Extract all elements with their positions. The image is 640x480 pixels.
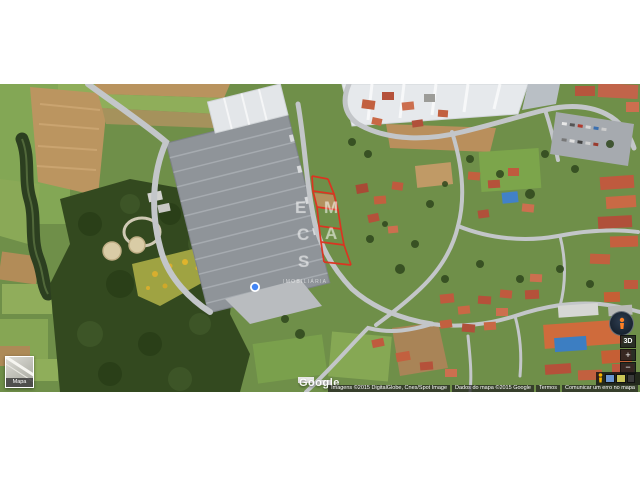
attribution-report-link[interactable]: Comunicar um erro no mapa xyxy=(562,385,638,392)
attribution-bar: Imagens ©2015 DigitalGlobe, Cnes/Spot Im… xyxy=(316,384,638,392)
zoom-in-button[interactable]: + xyxy=(620,349,636,361)
map-type-toggle[interactable]: Mapa xyxy=(5,356,34,388)
attribution-imagery: Imagens ©2015 DigitalGlobe, Cnes/Spot Im… xyxy=(328,385,450,392)
attribution-terms-link[interactable]: Termos xyxy=(536,385,560,392)
3d-view-button[interactable]: 3D xyxy=(620,335,636,348)
screenshot-canvas: E M C A S IMOBILIÁRIA 3D + − Google xyxy=(0,0,640,480)
inset-road-graphic xyxy=(5,356,34,380)
imagery-thumbnail[interactable] xyxy=(627,374,635,383)
satellite-map-viewport[interactable]: E M C A S IMOBILIÁRIA 3D + − Google xyxy=(0,84,640,392)
map-type-label: Mapa xyxy=(6,378,33,387)
place-marker-icon[interactable] xyxy=(250,282,260,292)
imagery-thumbnail[interactable] xyxy=(605,374,615,383)
imagery-thumbnail[interactable] xyxy=(616,374,626,383)
pegman-compass-control[interactable] xyxy=(609,311,634,336)
pegman-icon xyxy=(617,317,627,331)
attribution-mapdata: Dados do mapa ©2015 Google xyxy=(452,385,534,392)
satellite-imagery xyxy=(0,84,640,392)
pegman-thumbnail-icon[interactable] xyxy=(597,373,604,384)
